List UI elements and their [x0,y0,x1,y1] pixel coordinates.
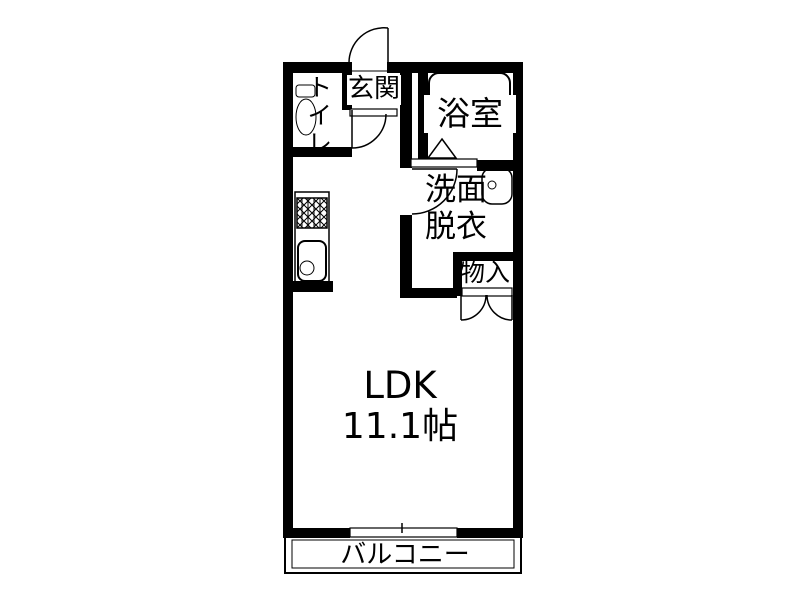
wall-top-left [283,62,350,73]
folding-door-triangle-icon [428,139,456,158]
bathroom-door-band [411,159,477,167]
storage-door-arc-left [461,295,486,320]
room-label-entrance: 玄関 [347,75,401,105]
room-label-ldk-area: 11.1帖 [310,406,490,447]
wall-washroom-left-upper [400,62,412,168]
wall-right [513,62,523,538]
wall-left [283,62,293,538]
room-label-toilet: トイレ [303,74,332,158]
room-label-ldk-name: LDK [310,365,490,406]
kitchen-sink-icon [298,241,326,281]
hall-doorway-band [350,109,397,116]
storage-door-band [462,288,512,296]
room-label-bathroom: 浴室 [424,95,516,133]
sliding-window-icon [350,528,457,537]
entrance-door-arc [349,28,388,63]
room-label-washroom-line2: 脱衣 [405,209,507,246]
room-label-washroom-line1: 洗面 [405,172,507,209]
wall-bottom-right [457,528,523,538]
stove-burner-icon [297,198,327,228]
wall-washroom-bottom [400,288,457,298]
room-label-washroom: 洗面 脱衣 [405,172,507,246]
room-label-storage: 物入 [456,259,514,288]
room-label-balcony: バルコニー [328,541,482,571]
storage-door-arc-right [487,295,512,320]
room-label-ldk: LDK 11.1帖 [310,365,490,447]
wall-bottom-left [283,528,350,538]
hall-door-arc [352,114,386,148]
floorplan-page: 玄関 トイレ 浴室 洗面 脱衣 物入 LDK 11.1帖 バルコニー [0,0,800,600]
